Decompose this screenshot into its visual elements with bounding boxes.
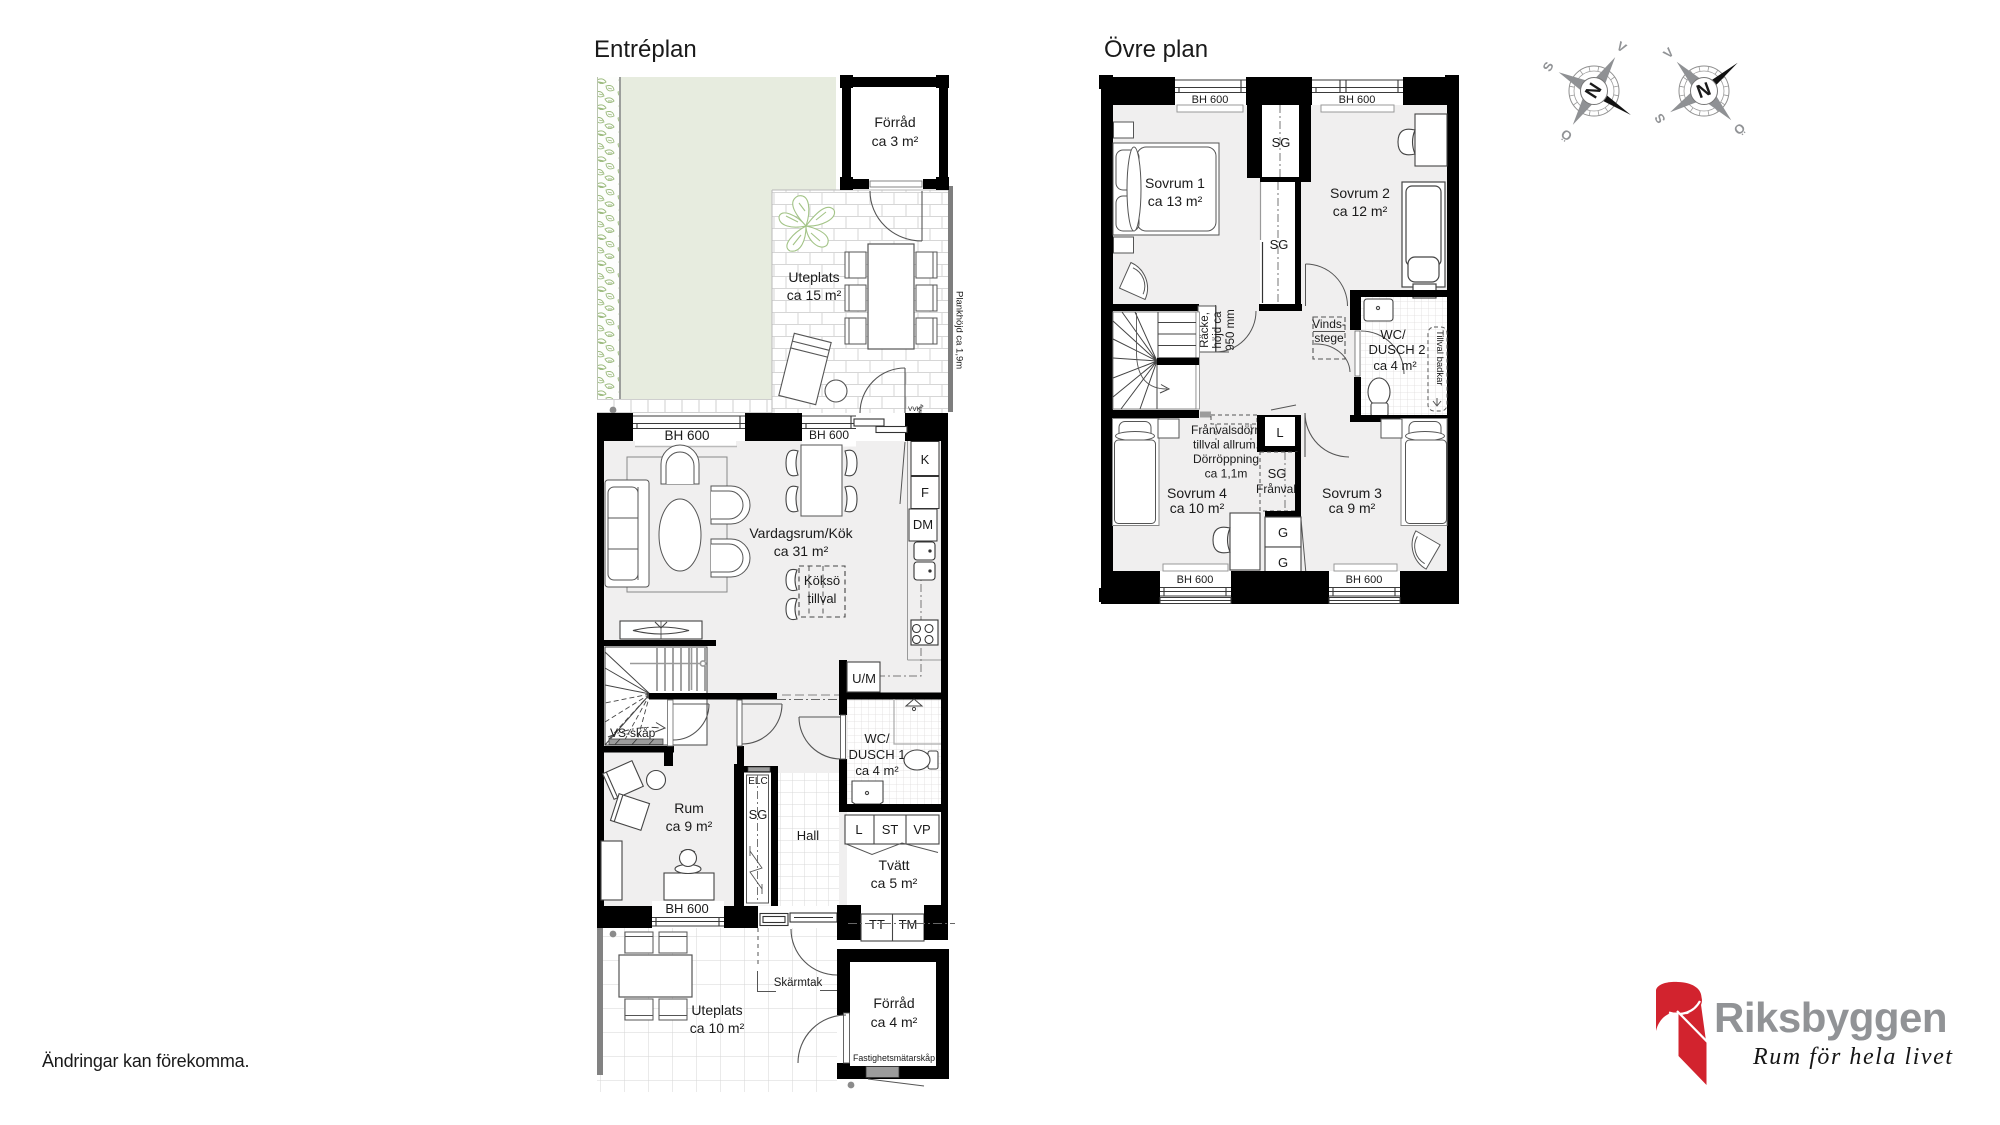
svg-text:F: F: [921, 485, 929, 500]
svg-text:ca 9 m²: ca 9 m²: [1329, 500, 1376, 516]
svg-text:Övre plan: Övre plan: [1104, 36, 1208, 63]
svg-text:Plankhöjd ca 1,9m: Plankhöjd ca 1,9m: [954, 291, 965, 369]
svg-text:Skärmtak: Skärmtak: [774, 977, 823, 989]
svg-text:L: L: [1276, 425, 1283, 440]
svg-text:tillval: tillval: [808, 591, 837, 606]
svg-text:U/M: U/M: [852, 671, 876, 686]
svg-text:DM: DM: [913, 517, 933, 532]
svg-text:BH 600: BH 600: [1339, 94, 1376, 106]
svg-text:BH 600: BH 600: [1177, 574, 1214, 586]
svg-text:BH 600: BH 600: [1192, 94, 1229, 106]
svg-text:Köksö: Köksö: [804, 573, 840, 588]
svg-text:ca 10 m²: ca 10 m²: [1170, 500, 1225, 516]
svg-text:BH 600: BH 600: [1346, 574, 1383, 586]
svg-text:ca 10 m²: ca 10 m²: [690, 1020, 745, 1036]
svg-text:Riksbyggen: Riksbyggen: [1714, 994, 1947, 1041]
svg-text:Frånval: Frånval: [1256, 482, 1296, 496]
svg-text:höjd ca: höjd ca: [1212, 311, 1224, 349]
svg-text:Rum: Rum: [674, 800, 704, 816]
svg-text:tillval allrum.: tillval allrum.: [1193, 438, 1259, 452]
svg-text:Uteplats: Uteplats: [788, 269, 839, 285]
svg-text:SG: SG: [1268, 466, 1287, 481]
svg-text:Förråd: Förråd: [873, 995, 914, 1011]
svg-text:Sovrum 4: Sovrum 4: [1167, 485, 1227, 501]
svg-text:DUSCH 1: DUSCH 1: [848, 747, 905, 762]
svg-text:Rum för hela livet: Rum för hela livet: [1752, 1044, 1953, 1070]
svg-text:stege: stege: [1314, 331, 1344, 345]
svg-text:ca 3 m²: ca 3 m²: [872, 133, 919, 149]
svg-text:ca 13 m²: ca 13 m²: [1148, 193, 1203, 209]
svg-text:ELC: ELC: [748, 776, 767, 787]
svg-text:TM: TM: [899, 917, 918, 932]
svg-text:ca 4 m²: ca 4 m²: [855, 763, 899, 778]
svg-text:Sovrum 3: Sovrum 3: [1322, 485, 1382, 501]
svg-text:Fastighetsmätarskåp: Fastighetsmätarskåp: [853, 1053, 935, 1063]
svg-text:K: K: [921, 452, 930, 467]
svg-text:G: G: [1278, 555, 1288, 570]
svg-text:Sovrum 2: Sovrum 2: [1330, 185, 1390, 201]
svg-text:L: L: [855, 822, 862, 837]
svg-text:ca 15 m²: ca 15 m²: [787, 287, 842, 303]
svg-text:BH 600: BH 600: [664, 428, 709, 443]
svg-text:ca 12 m²: ca 12 m²: [1333, 203, 1388, 219]
svg-text:Förråd: Förråd: [874, 114, 915, 130]
svg-text:BH 600: BH 600: [665, 901, 708, 916]
svg-text:VS-skåp: VS-skåp: [610, 726, 656, 740]
svg-text:950 mm: 950 mm: [1225, 309, 1237, 351]
svg-text:Räcke,: Räcke,: [1199, 312, 1211, 348]
svg-text:DUSCH 2: DUSCH 2: [1368, 342, 1425, 357]
svg-text:ST: ST: [882, 822, 899, 837]
svg-text:ca 5 m²: ca 5 m²: [871, 875, 918, 891]
svg-text:SG: SG: [1272, 135, 1291, 150]
svg-text:WC/: WC/: [1380, 327, 1406, 342]
svg-text:Ändringar kan förekomma.: Ändringar kan förekomma.: [42, 1051, 249, 1071]
svg-text:G: G: [1278, 525, 1288, 540]
svg-text:Hall: Hall: [797, 828, 820, 843]
svg-text:ca 4 m²: ca 4 m²: [1373, 358, 1417, 373]
svg-text:Vardagsrum/Kök: Vardagsrum/Kök: [749, 525, 853, 541]
svg-text:ca 31 m²: ca 31 m²: [774, 543, 829, 559]
svg-text:VP: VP: [913, 822, 930, 837]
svg-text:Frånvalsdörr,: Frånvalsdörr,: [1191, 423, 1261, 437]
svg-text:TT: TT: [869, 917, 885, 932]
svg-text:Sovrum 1: Sovrum 1: [1145, 175, 1205, 191]
svg-text:Tillval badkar: Tillval badkar: [1434, 330, 1445, 386]
svg-text:Entréplan: Entréplan: [594, 36, 697, 63]
svg-text:SG: SG: [749, 807, 768, 822]
svg-text:Uteplats: Uteplats: [691, 1002, 742, 1018]
svg-text:BH 600: BH 600: [809, 428, 849, 442]
svg-text:ca 1,1m: ca 1,1m: [1205, 467, 1248, 481]
svg-text:SG: SG: [1270, 237, 1289, 252]
svg-text:Dörröppning: Dörröppning: [1193, 452, 1259, 466]
svg-text:ca 9 m²: ca 9 m²: [666, 818, 713, 834]
svg-text:ca 4 m²: ca 4 m²: [871, 1014, 918, 1030]
svg-text:Tvätt: Tvätt: [878, 857, 909, 873]
svg-text:WC/: WC/: [864, 731, 890, 746]
svg-text:Vinds-: Vinds-: [1312, 317, 1346, 331]
